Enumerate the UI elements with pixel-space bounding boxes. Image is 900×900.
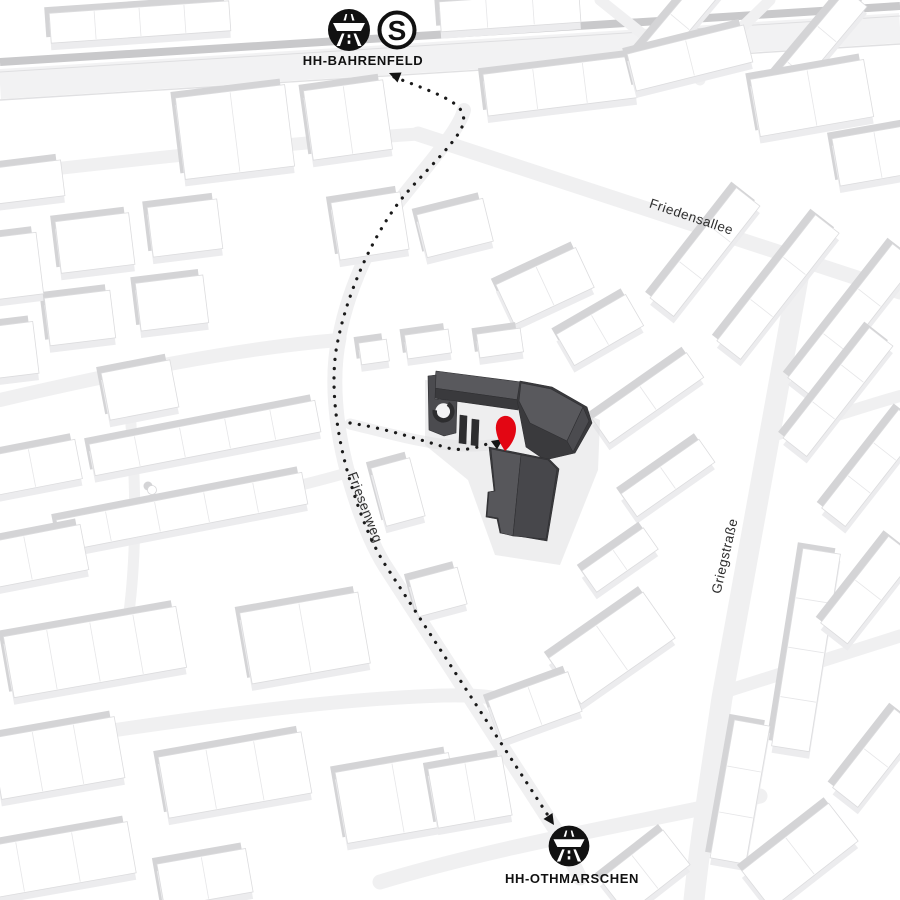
building-block — [39, 284, 115, 353]
building-block — [577, 522, 658, 599]
building-block — [0, 154, 65, 211]
building-block — [423, 750, 512, 835]
building-block — [616, 433, 715, 523]
building-block — [0, 316, 39, 386]
autobahn-icon — [328, 9, 370, 51]
arrow-to-bahrenfeld — [389, 73, 402, 83]
sbahn-letter: S — [388, 15, 407, 46]
autobahn-icon — [549, 826, 590, 867]
building-block — [483, 666, 582, 748]
building-block — [170, 79, 294, 187]
building-block — [44, 0, 231, 50]
sbahn-icon: S — [380, 13, 415, 48]
building-block — [595, 824, 690, 900]
building-block — [51, 466, 308, 558]
station-label-othmarschen: HH-OTHMARSCHEN — [505, 871, 639, 886]
building-block — [0, 816, 136, 900]
building-block — [828, 703, 900, 815]
map-canvas: Friedensallee Friesenweg Griegstraße S — [0, 0, 900, 900]
building-block — [354, 333, 390, 372]
building-block — [299, 74, 393, 167]
building-block — [235, 586, 371, 691]
building-block — [400, 323, 452, 366]
building-block — [472, 322, 524, 365]
building-block — [587, 347, 703, 451]
building-block — [130, 269, 208, 338]
building-block — [412, 192, 494, 264]
building-block — [0, 519, 89, 599]
station-label-bahrenfeld: HH-BAHRENFELD — [303, 53, 423, 68]
building-block — [0, 226, 44, 306]
building-block — [0, 600, 187, 704]
building-block — [0, 433, 82, 503]
building-block — [767, 542, 841, 758]
building-block — [96, 354, 179, 427]
chimney — [144, 482, 157, 495]
building-block — [153, 726, 312, 825]
building-block — [434, 0, 581, 39]
building-block — [326, 186, 409, 267]
building-block — [142, 193, 223, 264]
building-block — [0, 711, 125, 807]
transit-map: Friedensallee Friesenweg Griegstraße S — [0, 0, 900, 900]
building-block — [152, 843, 253, 900]
building-block — [50, 207, 135, 281]
